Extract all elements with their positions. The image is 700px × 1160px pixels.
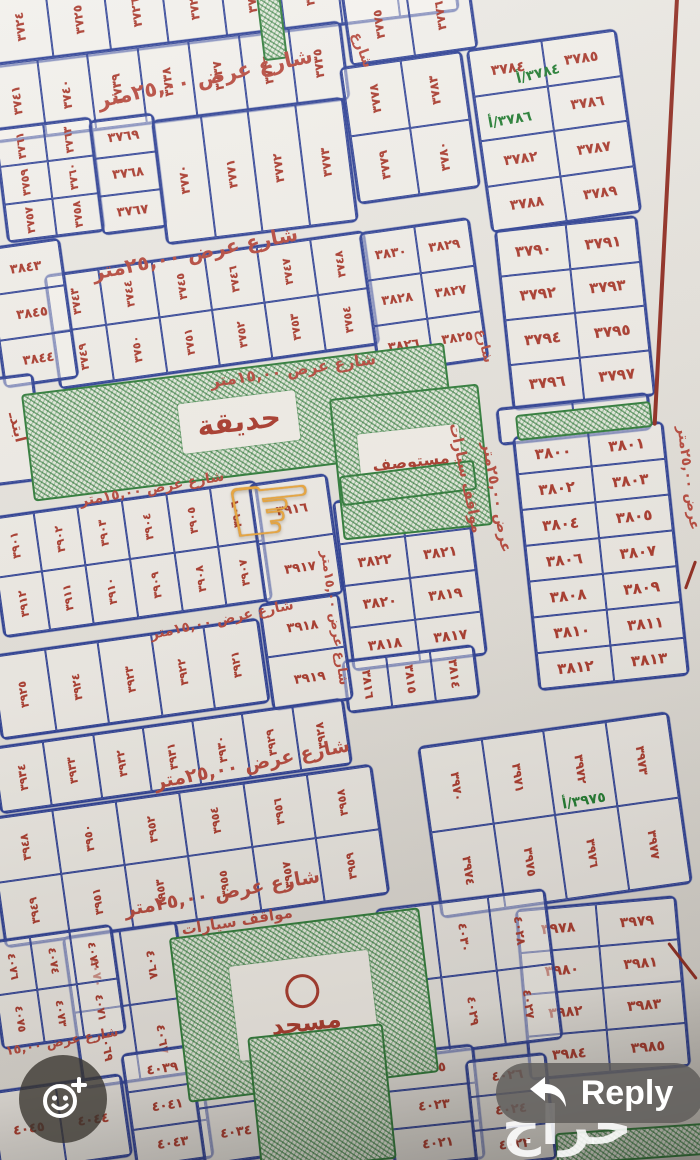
plot: ٣٧٧٨ bbox=[341, 61, 410, 136]
plot-number: ٣٧٥٠ bbox=[129, 335, 144, 363]
plot-number: ٣٩٤٨ bbox=[18, 833, 33, 861]
plot-number: ٣٨١٨ bbox=[367, 636, 403, 654]
plot-number: ٣٧٦٩ bbox=[107, 129, 140, 146]
plot-number: ٤٠٧٤ bbox=[46, 947, 61, 975]
plot-number: ٣٨٣٠ bbox=[374, 245, 407, 262]
plot-number: ٣٨١١ bbox=[626, 614, 664, 633]
plot-number: ٣٧٦٣ bbox=[61, 126, 75, 154]
plot-number: ٣٧٥٧ bbox=[23, 206, 37, 234]
plot: ٤٠٢٨ bbox=[488, 890, 553, 970]
plot: ٣٧٥٩ bbox=[0, 161, 52, 204]
plot: ٣٨١٥ bbox=[386, 652, 435, 707]
plot-block: ٣٨٠٠٣٨٠١٣٨٠٢٣٨٠٣٣٨٠٤٣٨٠٥٣٨٠٦٣٨٠٧٣٨٠٨٣٨٠٩… bbox=[512, 421, 690, 691]
plot-number: ٣٧٢٧ bbox=[186, 0, 201, 21]
plot: ٣٩٠٢ bbox=[33, 507, 85, 572]
plot-number: ٣٧٩٤ bbox=[524, 329, 562, 348]
plot-number: ٣٧٧٣ bbox=[318, 147, 333, 178]
plot-number: ٣٨٠٤ bbox=[541, 515, 579, 534]
plot-number: ٣٧٤٧ bbox=[280, 257, 295, 285]
plot-number: ٣٩٢١ bbox=[229, 650, 244, 678]
plot: ٣٧٧٦ bbox=[404, 0, 476, 56]
plot-number: ٣٩٨٣ bbox=[627, 997, 662, 1014]
plot-block: ٣٧٧٨٣٧٨٣٣٧٧٩٣٧٨٠ bbox=[339, 50, 481, 205]
plot: ٣٩٣٣ bbox=[43, 735, 102, 805]
plot-number: ٣٧٧٦ bbox=[432, 0, 448, 31]
plot-number: ٣٩٥٤ bbox=[208, 806, 223, 834]
plot-number: ٣٨١٥ bbox=[403, 664, 418, 695]
plot-number: ٣٩١١ bbox=[60, 583, 75, 611]
plot-number: ٣٩٥٩ bbox=[344, 851, 359, 879]
plot-number: ٣٨٢٩ bbox=[428, 237, 461, 254]
plot-number: ٣٧٩٣ bbox=[588, 278, 626, 297]
plot: ٣٧٩١ bbox=[566, 217, 640, 269]
plot: ٣٩٠٥ bbox=[166, 488, 218, 553]
plot: ٣٩٠٨ bbox=[174, 547, 226, 612]
plot-number: ٣٩٥٨ bbox=[336, 788, 351, 816]
plot: ٣٩١١ bbox=[42, 565, 94, 630]
plot-number: ٤٠٣٤ bbox=[219, 1123, 252, 1140]
plot-number: ٣٧٦٨ bbox=[111, 166, 144, 183]
plot-number: ٣٨٠٠ bbox=[534, 443, 572, 462]
plot: ٣٩٧١ bbox=[481, 731, 555, 824]
plot: ٣٧٧٥ bbox=[343, 0, 415, 64]
reply-button-label: Reply bbox=[581, 1074, 674, 1113]
plot-number: ٣٨٢٨ bbox=[381, 291, 414, 308]
plot-number: ٣٩٧٢ bbox=[572, 753, 588, 784]
plot: ٣٩٤٨ bbox=[0, 810, 61, 882]
plot-number: ٣٩٨٤ bbox=[552, 1046, 587, 1063]
plot: ٣٧٩٠ bbox=[496, 224, 570, 276]
plot-number: ٣٩٧٧ bbox=[646, 829, 662, 860]
reply-button[interactable]: Reply bbox=[496, 1063, 700, 1123]
plot-number: ٣٧٨٥ bbox=[563, 49, 599, 68]
plot-number: ٣٧٩١ bbox=[584, 234, 622, 253]
plot-number: ٣٧٤٠ bbox=[59, 79, 74, 110]
screenshot-root: حديقةمستوصفمسجد٣٧٢٤٣٧٢٥٣٧٢٦٣٧٢٧٣٧٢٨٣٧٢٩٣… bbox=[0, 0, 700, 1160]
sticker-button[interactable] bbox=[19, 1055, 107, 1143]
plot-number: ٣٨١٦ bbox=[360, 669, 375, 700]
plot-number: ٣٧٩٠ bbox=[514, 241, 552, 260]
plot-block: ٣٨٤٣٣٨٤٥٣٨٤٤ bbox=[0, 237, 80, 388]
plot-number: ٣٧٧٩ bbox=[377, 150, 393, 181]
plot: ٣٩٧٣ bbox=[605, 713, 679, 806]
plot-number: ٣٩٤٩ bbox=[27, 896, 42, 924]
plot-number: ٣٩٠٤ bbox=[141, 513, 156, 541]
plot: ٣٧٦٠ bbox=[47, 156, 99, 199]
plot-number: ٣٩١٢ bbox=[16, 590, 31, 618]
plot-number: ٣٩١٠ bbox=[105, 577, 120, 605]
plot-number: ٤٠٢٣ bbox=[418, 1098, 451, 1114]
plot-number: ٣٧٨٦ bbox=[570, 94, 606, 113]
plot-number: ٤٠٤٣ bbox=[156, 1134, 189, 1151]
plot-number: ٣٧٨٣ bbox=[427, 75, 443, 106]
plot: ٣٩٥٠ bbox=[52, 802, 124, 874]
plot-number: ٣٩٣١ bbox=[165, 742, 180, 770]
plot: ٣٨٣٠ bbox=[361, 227, 421, 281]
plot-map: حديقةمستوصفمسجد٣٧٢٤٣٧٢٥٣٧٢٦٣٧٢٧٣٧٢٨٣٧٢٩٣… bbox=[0, 0, 700, 1160]
plot-number: ٣٨١٤ bbox=[446, 658, 461, 689]
plot: ٣٧٥٠ bbox=[106, 317, 167, 380]
plot-number: ٤٠٦٨ bbox=[145, 949, 161, 980]
plot: ٤٠٢٩ bbox=[441, 971, 506, 1051]
plot-number: ٣٩٧٦ bbox=[584, 837, 600, 868]
plot-number: ٣٩٥٠ bbox=[81, 824, 96, 852]
plot: ٣٩٧٧ bbox=[617, 798, 691, 891]
plot-number: ٣٧٤٥ bbox=[174, 272, 189, 300]
plot-number: ٣٩٨٥ bbox=[630, 1039, 665, 1056]
plot-number: ٣٨٢٢ bbox=[357, 552, 393, 570]
plot-number: ٣٩٧٩ bbox=[619, 913, 654, 930]
plot-number: ٣٨٠٢ bbox=[538, 479, 576, 498]
plot: ٤٠٧٢ bbox=[70, 926, 118, 984]
plot: ٤٠٢٧ bbox=[497, 964, 562, 1044]
plot-number: ٣٨٠٧ bbox=[619, 543, 657, 562]
plot-number: ٣٩٧٠ bbox=[448, 771, 464, 802]
plot: ٣٧٩٥ bbox=[575, 306, 649, 358]
plot-number: ٣٨٤٤ bbox=[22, 350, 55, 367]
plot-number: ٣٨٢٥ bbox=[441, 330, 474, 347]
plot-number: ٣٧٢٩ bbox=[301, 0, 316, 7]
plot-number: ٣٧٧٥ bbox=[371, 9, 387, 40]
plot-number: ٣٨٠٨ bbox=[549, 586, 587, 605]
plot-number: ٣٨١٢ bbox=[556, 658, 594, 677]
street-label: عرض ٢٥,٠٠متر bbox=[674, 425, 700, 531]
plot: ٣٩٥٩ bbox=[316, 829, 388, 901]
plot-number: ٣٨٠٦ bbox=[545, 550, 583, 569]
plot-number: ٣٩٢٥ bbox=[17, 680, 32, 708]
plot-block: ٣٧٧٠٣٧٧١٣٧٧٢٣٧٧٣ bbox=[151, 97, 359, 246]
plot-number: ٣٩٠١ bbox=[8, 531, 23, 559]
plot: ٣٧٥١ bbox=[159, 310, 220, 373]
plot-number: ٣٩٥١ bbox=[90, 887, 105, 915]
plot: ٣٩٧٩ bbox=[596, 897, 678, 946]
plot-number: ٣٩١٨ bbox=[286, 618, 319, 635]
plot-number: ٤٠٧٣ bbox=[53, 999, 68, 1027]
plot-number: ٣٨٠١ bbox=[608, 435, 646, 454]
plot: ٣٧٩٣ bbox=[570, 261, 644, 313]
plot-number: ٣٨٤٣ bbox=[9, 259, 42, 276]
red-border-line bbox=[653, 0, 680, 426]
plot: ٣٩٨٣ bbox=[603, 981, 685, 1030]
plot-number: ٤٠٣٠ bbox=[457, 922, 472, 953]
plot-number: ٤٠٢١ bbox=[421, 1135, 454, 1151]
plot-number: ٤٠٣٩ bbox=[146, 1060, 179, 1077]
plot-number: ٣٧٩٥ bbox=[593, 322, 631, 341]
plot-number: ٣٧٤٤ bbox=[122, 279, 137, 307]
pointing-hand-emoji: ☞ bbox=[219, 457, 322, 560]
reply-arrow-icon bbox=[527, 1075, 569, 1111]
plot: ٤٠٧٤ bbox=[29, 932, 77, 990]
plot-number: ٤٠٢٨ bbox=[512, 915, 527, 946]
mosque-dome-circle-icon bbox=[283, 972, 321, 1010]
green-block-bottom-area bbox=[247, 1023, 396, 1160]
plot-number: ٣٧٨٧ bbox=[576, 139, 612, 158]
plot-number: ٣٩٠٩ bbox=[149, 571, 164, 599]
plot-number: ٣٨١٣ bbox=[630, 650, 668, 669]
plot: ٣٧٨٩ bbox=[560, 166, 640, 221]
plot-number: ٣٧٥١ bbox=[182, 327, 197, 355]
plot: ٣٨١٢ bbox=[537, 646, 614, 690]
plot: ٣٧٥٨ bbox=[52, 193, 104, 236]
plot-number: ٣٧٦١ bbox=[14, 132, 28, 160]
plot: ٣٩٠٤ bbox=[122, 494, 174, 559]
plot: ٣٨٢٧ bbox=[421, 265, 481, 319]
plot-number: ٣٩٠٢ bbox=[52, 525, 67, 553]
plot-number: ٣٨٠٣ bbox=[611, 471, 649, 490]
plot: ٣٨١٤ bbox=[429, 646, 478, 701]
plot-number: ٣٩٨١ bbox=[623, 955, 658, 972]
plot-number: ٤٠٢٧ bbox=[521, 989, 536, 1020]
plot-number: ٣٧٢٦ bbox=[128, 0, 143, 28]
plot-number: ٣٩٠٥ bbox=[185, 506, 200, 534]
plot: ٣٧٨٣ bbox=[401, 52, 470, 127]
plot: ٣٩٣٢ bbox=[93, 728, 152, 798]
plot-number: ٤٠٢٩ bbox=[466, 995, 481, 1026]
plot-number: ٣٧٤١ bbox=[9, 85, 24, 116]
plot: ٣٧٩٢ bbox=[501, 269, 575, 321]
plot: ٣٧٧٩ bbox=[351, 128, 420, 203]
plot-number: ٣٩٠٣ bbox=[96, 519, 111, 547]
plot-number: ٣٩٢٤ bbox=[70, 672, 85, 700]
plot-number: ٣٩٣٤ bbox=[15, 763, 30, 791]
plot-number: ٣٧٢٥ bbox=[71, 4, 86, 35]
plot-number: ٣٩٧١ bbox=[510, 762, 526, 793]
plot-number: ٣٧٨٠ bbox=[436, 141, 452, 172]
plot-number: ٣٩٢٣ bbox=[123, 665, 138, 693]
plot: ٣٩٧٦ bbox=[555, 806, 629, 899]
plot: ٣٧٦١ bbox=[0, 124, 47, 167]
plot-number: ٣٧٧٠ bbox=[177, 164, 192, 195]
plot-number: ٣٨٢١ bbox=[422, 544, 458, 562]
plot-number: ٤٠٧٢ bbox=[86, 941, 101, 969]
plot: ٣٧٦٣ bbox=[43, 119, 95, 162]
plot: ٣٨٢٨ bbox=[367, 273, 427, 327]
plot-number: ٣٨٢٧ bbox=[434, 284, 467, 301]
plot-number: ٣٩٥٦ bbox=[272, 797, 287, 825]
red-border-line bbox=[684, 560, 697, 589]
plot-number: ٣٧٩٦ bbox=[528, 374, 566, 393]
plot-number: ٣٧٨٨ bbox=[509, 194, 545, 213]
plot-number: ٣٧٧٢ bbox=[271, 153, 286, 184]
garden-label: حديقة bbox=[195, 402, 282, 443]
plot: ٣٩١٠ bbox=[86, 559, 138, 624]
plot: ٣٩٥٢ bbox=[116, 793, 188, 865]
plot-number: ٣٨٤٥ bbox=[15, 304, 48, 321]
plot: ٣٩٢١ bbox=[204, 620, 268, 709]
plot: ٣٧٨٠ bbox=[410, 119, 479, 194]
plot-number: ٣٩٥٢ bbox=[145, 815, 160, 843]
plot-number: ٣٩٧٥ bbox=[522, 846, 538, 877]
plot-number: ٣٧٥٢ bbox=[235, 320, 250, 348]
plot-block: ٣٧٩٠٣٧٩١٣٧٩٢٣٧٩٣٣٧٩٤٣٧٩٥٣٧٩٦٣٧٩٧ bbox=[494, 215, 656, 411]
plot: ٣٧٩٤ bbox=[505, 313, 579, 365]
plot-number: ٣٧٨٢ bbox=[503, 149, 539, 168]
plot: ٣٧٥٣ bbox=[265, 295, 326, 358]
plot: ٣٩٥٤ bbox=[180, 784, 252, 856]
plot-number: ٣٧٨٩ bbox=[582, 184, 618, 203]
plot-number: ٣٧٦٧ bbox=[116, 203, 149, 220]
smiley-plus-icon bbox=[35, 1071, 91, 1127]
plot: ٣٩٥٨ bbox=[307, 766, 379, 838]
plot-number: ٣٧٥٣ bbox=[288, 313, 303, 341]
plot-number: ٣٩١٩ bbox=[293, 669, 326, 686]
plot: ٣٩٧٠ bbox=[419, 740, 493, 833]
plot-number: ٤٠٧٥ bbox=[13, 1005, 28, 1033]
plot-number: ٣٧٤٩ bbox=[77, 342, 92, 370]
plot-number: ٣٧٩٧ bbox=[598, 366, 636, 385]
plot-number: ٤٠٤١ bbox=[151, 1097, 184, 1114]
plot-number: ٣٧٧١ bbox=[224, 159, 239, 190]
plot: ٣٨١٣ bbox=[610, 638, 687, 682]
plot: ٣٨٢٩ bbox=[414, 219, 474, 273]
plot-number: ٣٩٣٢ bbox=[115, 749, 130, 777]
plot-number: ٣٨٠٩ bbox=[623, 579, 661, 598]
plot-number: ٣٧٤٣ bbox=[69, 287, 84, 315]
plot-number: ٣٧٥٨ bbox=[71, 200, 85, 228]
plot-number: ٣٨١٧ bbox=[433, 627, 469, 645]
plot-number: ٣٧٥٩ bbox=[19, 169, 33, 197]
plot-number: ٣٧٦٠ bbox=[66, 163, 80, 191]
plot-number: ٣٧٩٢ bbox=[519, 285, 557, 304]
plot: ٣٩٠٣ bbox=[78, 501, 130, 566]
plot-number: ٣٩٠٨ bbox=[193, 565, 208, 593]
plot-number: ٣٨١٩ bbox=[427, 586, 463, 604]
plot-number: ٣٧٤٨ bbox=[333, 250, 348, 278]
plot-number: ٣٧٧٨ bbox=[368, 83, 384, 114]
plot-number: ٣٧٤٦ bbox=[227, 264, 242, 292]
plot-number: ٤٠٧٦ bbox=[6, 952, 21, 980]
plot-number: ٣٧٢٤ bbox=[13, 12, 28, 43]
plot-number: ٣٨١٠ bbox=[553, 622, 591, 641]
plot-number: ٣٨٠٥ bbox=[615, 507, 653, 526]
plot-number: ٣٩٧٤ bbox=[460, 855, 476, 886]
plot-number: ٣٩٢٢ bbox=[176, 657, 191, 685]
plot: ٤٠٣٠ bbox=[432, 897, 497, 977]
plot: ٣٩٠٩ bbox=[130, 553, 182, 618]
plot-number: ٣٨٢٠ bbox=[362, 594, 398, 612]
plot-block: ٣٩٧٠٣٩٧١٣٩٧٢٣٩٧٣٣٩٧٤٣٩٧٥٣٩٧٦٣٩٧٧ bbox=[417, 711, 693, 919]
plot: ٣٧٥٧ bbox=[5, 199, 57, 242]
plot: ٣٧٦٧ bbox=[100, 189, 166, 234]
plot-number: ٤٠٧١ bbox=[94, 994, 109, 1022]
plot: ٣٩٥٦ bbox=[243, 775, 315, 847]
plot-number: ٣٩٣٣ bbox=[65, 756, 80, 784]
plot-number: ٣٩٧٣ bbox=[634, 745, 650, 776]
plot-number: ٣٧٥٤ bbox=[341, 305, 356, 333]
plot: ٣٧٥٢ bbox=[212, 303, 273, 366]
